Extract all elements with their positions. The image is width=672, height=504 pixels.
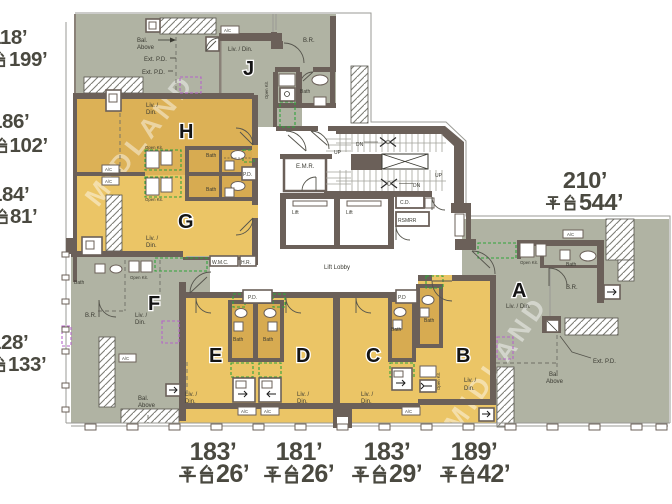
svg-text:Liv. /: Liv. / bbox=[297, 392, 310, 398]
svg-text:Lift: Lift bbox=[346, 210, 353, 216]
svg-text:Open Kit.: Open Kit. bbox=[145, 145, 163, 150]
svg-text:A/C: A/C bbox=[105, 179, 112, 184]
svg-text:102’: 102’ bbox=[10, 134, 48, 157]
svg-text:Open Kit.: Open Kit. bbox=[520, 260, 538, 265]
svg-text:H.R.: H.R. bbox=[241, 260, 251, 266]
svg-text:Open Kit.: Open Kit. bbox=[264, 81, 269, 99]
svg-text:Liv. / Din.: Liv. / Din. bbox=[228, 47, 253, 53]
svg-text:118’: 118’ bbox=[0, 26, 27, 49]
svg-text:DN: DN bbox=[413, 183, 421, 189]
svg-text:Open Kit.: Open Kit. bbox=[130, 275, 148, 280]
svg-text:Liv. /: Liv. / bbox=[361, 392, 374, 398]
svg-text:Liv. /: Liv. / bbox=[146, 103, 159, 109]
svg-text:42’: 42’ bbox=[477, 460, 510, 488]
svg-text:Bath: Bath bbox=[233, 337, 244, 343]
svg-text:Bath: Bath bbox=[566, 262, 577, 268]
svg-text:UP: UP bbox=[334, 150, 342, 156]
svg-text:Din.: Din. bbox=[146, 110, 157, 116]
svg-text:UP: UP bbox=[435, 173, 443, 179]
svg-text:Above: Above bbox=[546, 379, 564, 385]
svg-text:Bath: Bath bbox=[300, 89, 311, 95]
svg-text:199’: 199’ bbox=[9, 48, 47, 71]
svg-text:Open Kit.: Open Kit. bbox=[436, 372, 441, 390]
svg-text:P.D.: P.D. bbox=[243, 172, 252, 178]
svg-text:A: A bbox=[512, 280, 526, 302]
svg-text:133’: 133’ bbox=[8, 353, 46, 376]
svg-text:Liv. /: Liv. / bbox=[135, 313, 148, 319]
svg-text:Open Kit.: Open Kit. bbox=[145, 197, 163, 202]
svg-text:Bath: Bath bbox=[206, 187, 217, 193]
svg-text:Din.: Din. bbox=[135, 320, 146, 326]
svg-text:Bal: Bal bbox=[549, 372, 558, 378]
svg-text:Bath: Bath bbox=[391, 327, 402, 333]
svg-text:Liv. / Din.: Liv. / Din. bbox=[506, 304, 531, 310]
svg-text:J: J bbox=[243, 58, 254, 80]
svg-text:G: G bbox=[178, 211, 194, 233]
svg-text:Above: Above bbox=[137, 45, 155, 51]
svg-text:Bal.: Bal. bbox=[138, 396, 149, 402]
svg-text:128’: 128’ bbox=[0, 331, 28, 354]
svg-text:Bal.: Bal. bbox=[137, 38, 148, 44]
svg-text:Liv. /: Liv. / bbox=[146, 236, 159, 242]
svg-text:E: E bbox=[209, 345, 222, 367]
svg-text:184’: 184’ bbox=[0, 183, 29, 206]
svg-text:W.M.C.: W.M.C. bbox=[212, 260, 228, 266]
svg-text:D: D bbox=[296, 345, 310, 367]
svg-text:C: C bbox=[366, 345, 380, 367]
svg-text:DN: DN bbox=[356, 142, 364, 148]
svg-text:544’: 544’ bbox=[579, 189, 623, 215]
svg-text:Din.: Din. bbox=[464, 386, 475, 392]
svg-text:Din.: Din. bbox=[297, 399, 308, 405]
svg-text:B: B bbox=[456, 345, 470, 367]
svg-text:186’: 186’ bbox=[0, 110, 29, 133]
svg-text:A/C: A/C bbox=[405, 409, 412, 414]
svg-text:F: F bbox=[148, 293, 160, 315]
svg-text:A/C: A/C bbox=[105, 167, 112, 172]
svg-text:H: H bbox=[179, 121, 193, 143]
svg-text:P.D: P.D bbox=[398, 295, 406, 301]
svg-text:Ext. P.D.: Ext. P.D. bbox=[593, 359, 616, 365]
svg-text:B.R.: B.R. bbox=[303, 38, 315, 44]
svg-text:Bath: Bath bbox=[424, 318, 435, 324]
svg-text:RSMRR: RSMRR bbox=[398, 218, 417, 224]
svg-text:Bath: Bath bbox=[74, 280, 85, 286]
svg-text:A/C: A/C bbox=[264, 409, 271, 414]
svg-text:A/C: A/C bbox=[122, 356, 129, 361]
svg-text:26’: 26’ bbox=[216, 460, 249, 488]
svg-text:Din.: Din. bbox=[146, 243, 157, 249]
svg-text:81’: 81’ bbox=[10, 205, 37, 228]
svg-text:26’: 26’ bbox=[301, 460, 334, 488]
svg-text:Lift: Lift bbox=[292, 210, 299, 216]
svg-text:A/C: A/C bbox=[241, 409, 248, 414]
svg-text:29’: 29’ bbox=[389, 460, 422, 488]
svg-text:Lift Lobby: Lift Lobby bbox=[324, 265, 350, 271]
svg-text:Liv. /: Liv. / bbox=[185, 392, 198, 398]
svg-text:Din.: Din. bbox=[185, 399, 196, 405]
svg-text:B.R.: B.R. bbox=[566, 285, 578, 291]
svg-text:Din.: Din. bbox=[361, 399, 372, 405]
svg-text:Liv. /: Liv. / bbox=[464, 378, 477, 384]
svg-text:B.R.: B.R. bbox=[85, 313, 97, 319]
svg-text:Above: Above bbox=[138, 403, 156, 409]
svg-text:Bath: Bath bbox=[206, 153, 217, 159]
svg-text:Bath: Bath bbox=[263, 337, 274, 343]
svg-text:P.D.: P.D. bbox=[248, 295, 257, 301]
svg-text:Ext. P.D.: Ext. P.D. bbox=[142, 70, 165, 76]
svg-text:E.M.R.: E.M.R. bbox=[296, 164, 315, 170]
svg-text:A/C: A/C bbox=[224, 28, 231, 33]
svg-text:C.D.: C.D. bbox=[400, 200, 410, 206]
svg-text:Ext. P.D.: Ext. P.D. bbox=[144, 57, 167, 63]
svg-text:A/C: A/C bbox=[567, 232, 574, 237]
